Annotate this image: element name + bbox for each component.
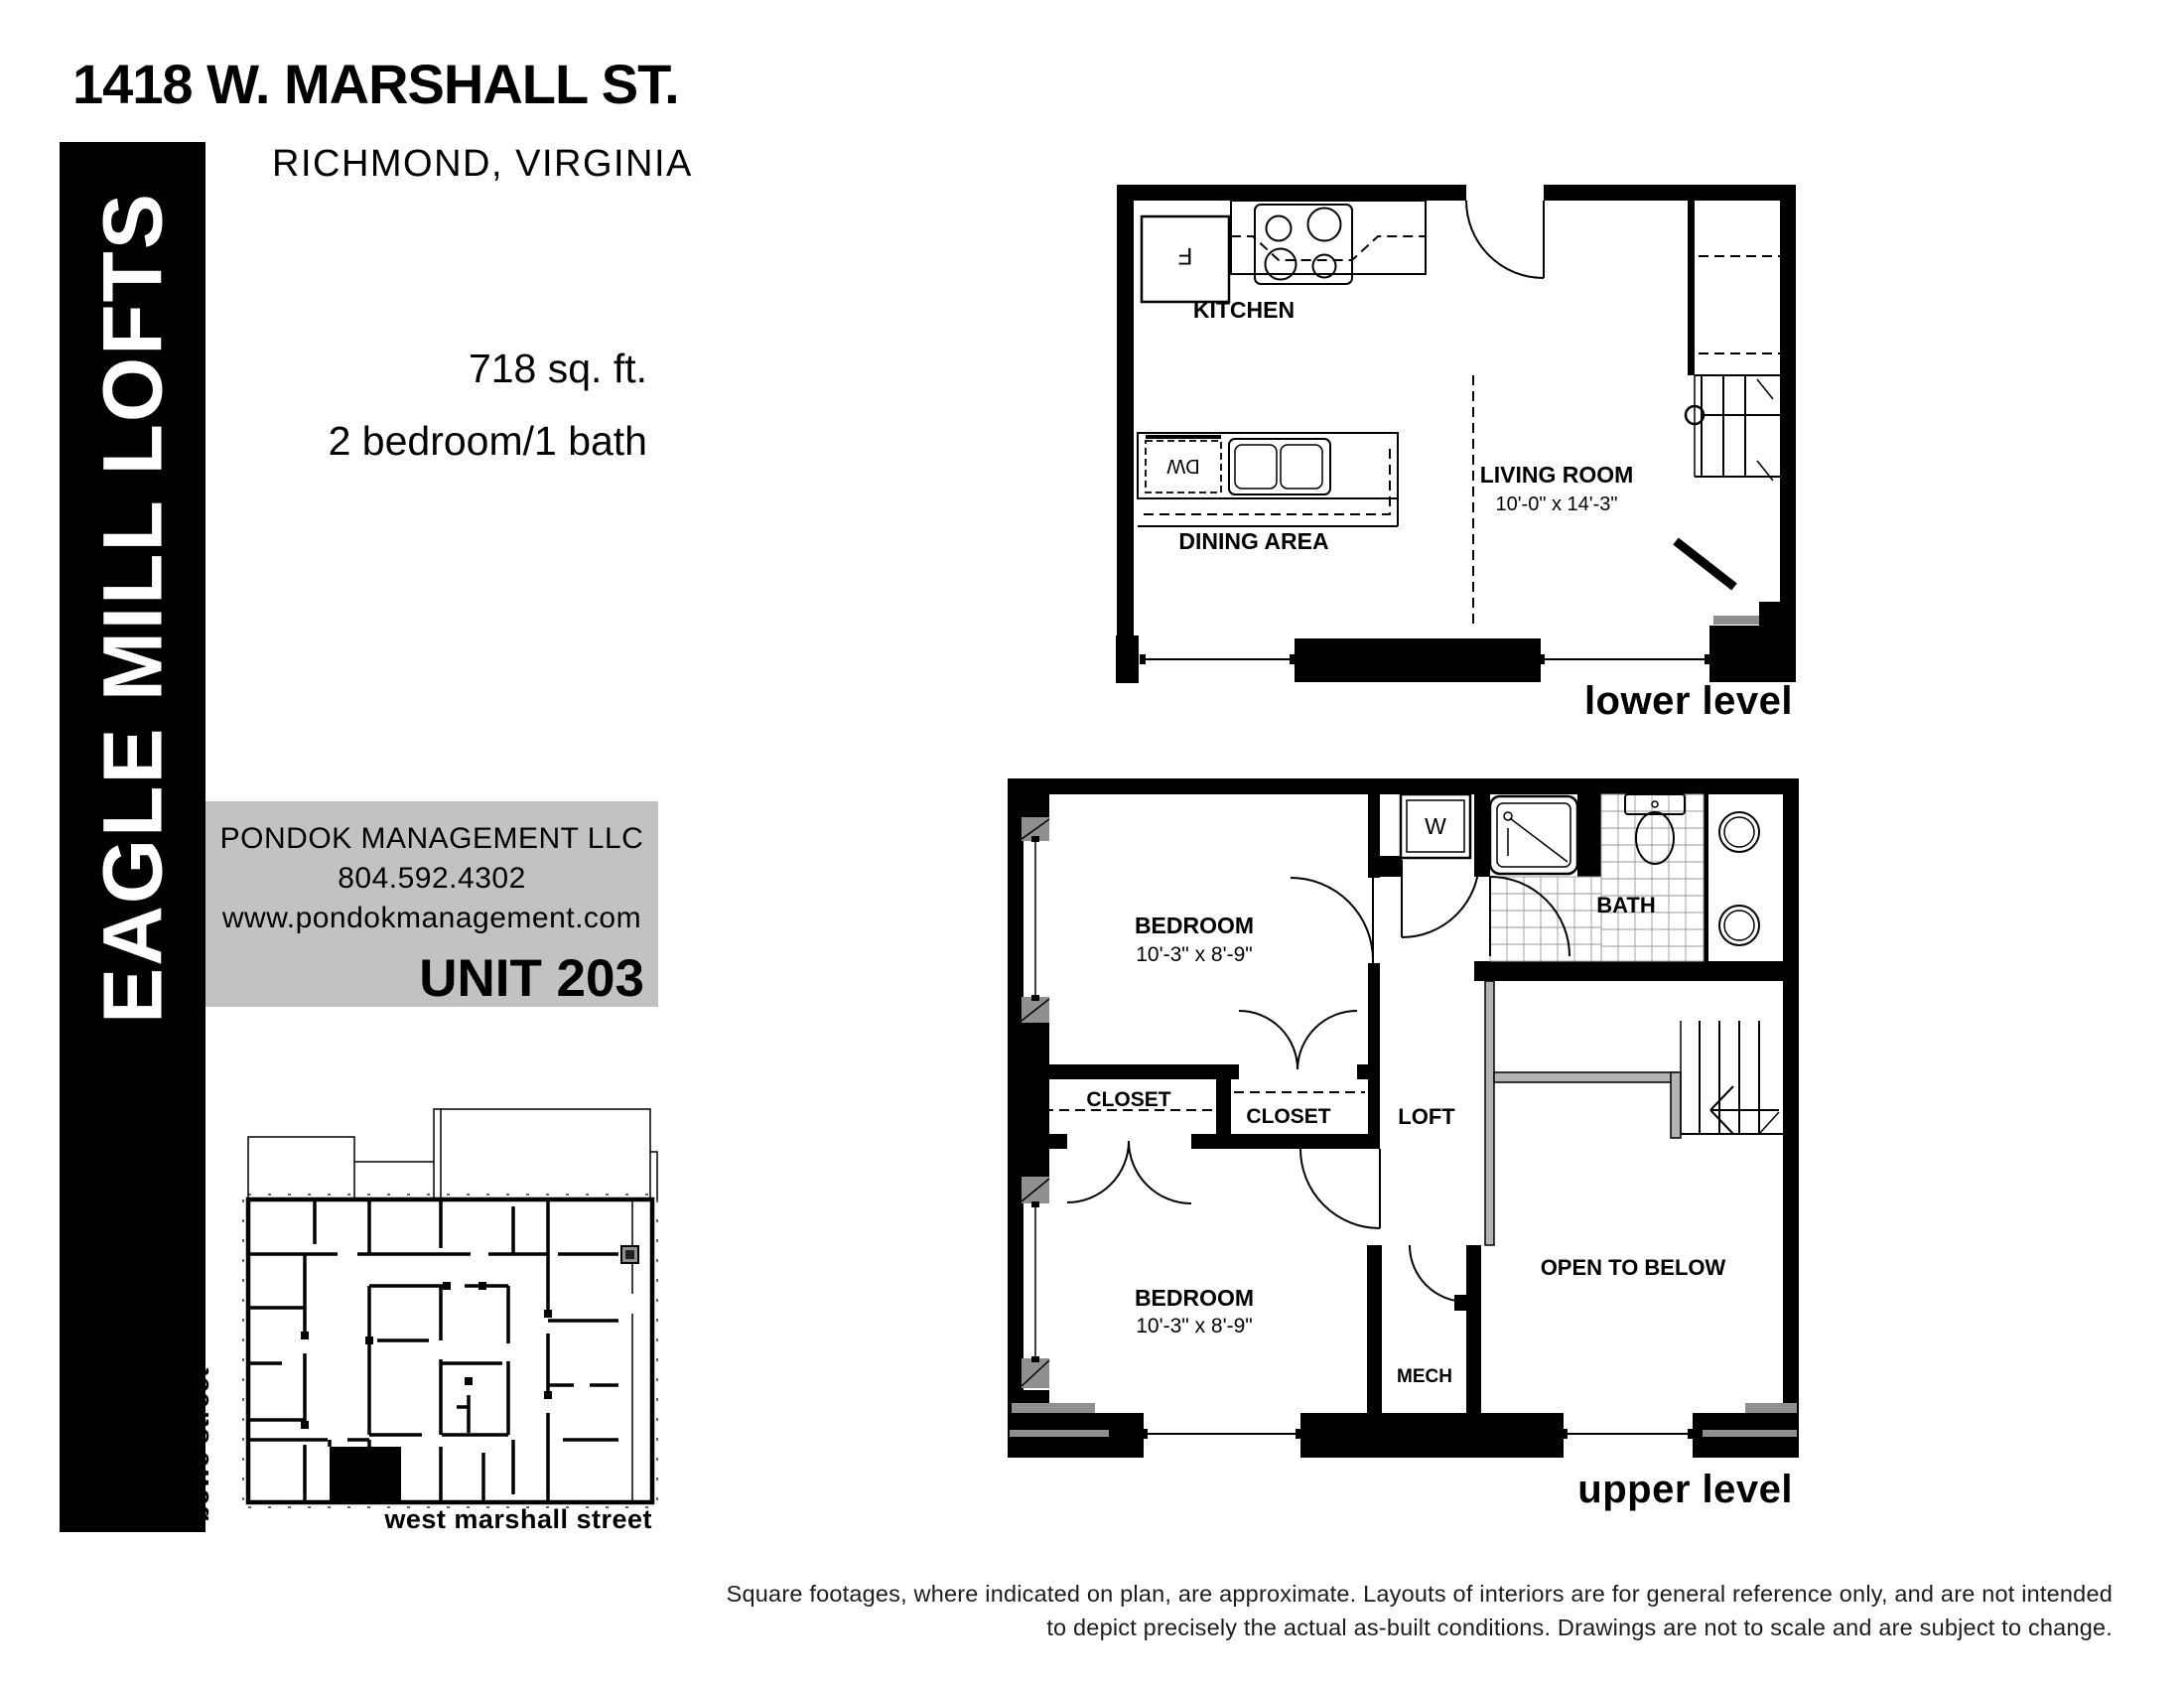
counter-return [1138,498,1398,526]
building-outline [248,1199,652,1502]
shower-lines [1508,818,1568,862]
unit-number: UNIT 203 [205,948,658,1009]
window-nub [1142,1429,1148,1439]
closet-shelf-dashed [1699,256,1780,353]
sink-icon [1719,812,1759,852]
sink-icon [1229,439,1330,494]
wall [1368,794,1380,878]
wall [1367,1245,1382,1413]
wall [1041,1064,1216,1079]
room-label-open-below: OPEN TO BELOW [1541,1255,1726,1280]
site-plan: bowe street west marshall street [191,1097,662,1539]
wall [1704,794,1708,961]
wall [1577,794,1601,877]
sink-basin [1281,445,1322,489]
wall [1780,185,1796,606]
wall [1300,1413,1564,1458]
unit-layout: 2 bedroom/1 bath [297,418,647,465]
loft-edge [1494,1072,1678,1082]
page-subtitle: RICHMOND, VIRGINIA [272,143,644,186]
highlighted-unit [330,1447,401,1502]
stair-edge [1681,1021,1779,1134]
management-website: www.pondokmanagement.com [205,899,658,938]
wall-accent [1713,616,1759,625]
lower-level-caption: lower level [1390,679,1793,724]
wall [1544,185,1796,201]
wall-accent [1703,1430,1797,1437]
wall-accent [1012,1403,1095,1413]
window-nub [1539,654,1545,664]
window-nub [1031,1356,1039,1362]
sink-inner [1724,817,1754,847]
wall [1191,1134,1380,1149]
room-dims-bedroom: 10'-3" x 8'-9" [1136,1315,1252,1337]
room-label-bedroom: BEDROOM [1135,1285,1254,1311]
disclaimer-line2: to depict precisely the actual as-built … [727,1611,2113,1644]
wall [1380,856,1402,877]
wall-accent [1745,1403,1797,1413]
burner-icon [1308,209,1341,241]
management-box: PONDOK MANAGEMENT LLC 804.592.4302 www.p… [205,801,658,1007]
wall-accent [1010,1430,1109,1437]
angled-wall [1676,541,1734,587]
washer-label: W [1425,813,1446,839]
window-nub [1031,836,1039,842]
wall-nubs [301,1282,552,1429]
window-nub [1140,654,1146,664]
toilet-button [1652,801,1658,807]
toilet-bowl [1636,812,1674,864]
window-nub [1562,1429,1568,1439]
room-dims-bedroom: 10'-3" x 8'-9" [1136,943,1252,966]
page-title: 1418 W. MARSHALL ST. [72,52,649,116]
wall [1122,185,1466,201]
room-label-closet: CLOSET [1086,1088,1170,1111]
wall [1688,201,1695,375]
disclaimer-line1: Square footages, where indicated on plan… [727,1577,2113,1611]
wall [1008,1023,1049,1177]
window-nub [1031,995,1039,1001]
wall [1783,778,1799,1458]
wall [1454,1295,1468,1311]
wall [1474,794,1490,877]
mech-door-icon [1410,1245,1466,1302]
room-label-kitchen: KITCHEN [1193,297,1295,323]
room-label-bath: BATH [1596,893,1655,917]
stair-edge [1695,375,1773,481]
floorplan-flyer: 1418 W. MARSHALL ST. RICHMOND, VIRGINIA … [0,0,2184,1688]
wall [1295,638,1541,682]
upper-level-caption: upper level [1390,1468,1793,1512]
room-label-mech: MECH [1397,1366,1452,1387]
burner-icon [1267,216,1292,241]
room-label-living: LIVING ROOM [1480,462,1634,488]
management-phone: 804.592.4302 [205,859,658,899]
upper-level-plan: W BATH [1008,771,1807,1472]
lower-level-plan: F DW KITCHEN DINING AREA LIVING ROOM 10'… [1114,177,1804,688]
disclaimer: Square footages, where indicated on plan… [727,1577,2113,1644]
building-name-banner: EAGLE MILL LOFTS [60,142,205,1532]
closet-double-door-icon [1239,1011,1357,1069]
hall-door-icon [1402,860,1479,937]
entry-door-icon [1466,201,1544,278]
sink-inner [1724,911,1754,940]
dishwasher-label: DW [1166,455,1199,477]
room-label-loft: LOFT [1398,1104,1455,1129]
wall [1466,1245,1481,1413]
stairs-icon [1681,1021,1783,1134]
street-label-marshall: west marshall street [383,1504,652,1534]
wall [1216,1064,1239,1079]
wall [1008,778,1049,817]
wall-pier [1116,635,1139,683]
wall [1474,961,1799,981]
unit-area: 718 sq. ft. [297,346,647,392]
shower-icon [1490,796,1577,874]
closet-double-door-icon [1067,1141,1191,1203]
roof-outline [248,1109,657,1199]
room-dims-living: 10'-0" x 14'-3" [1495,493,1617,515]
wall [1357,1064,1380,1079]
wall-pier [1759,602,1796,630]
loft-railing [1485,981,1494,1245]
room-label-dining: DINING AREA [1178,528,1328,554]
bedroom-door-icon [1300,1149,1380,1228]
management-company: PONDOK MANAGEMENT LLC [205,819,658,859]
wall [1117,185,1134,637]
window-nub [1031,1201,1039,1207]
unit-marker-core [625,1250,634,1259]
room-label-closet: CLOSET [1246,1105,1330,1128]
wall [1041,1134,1067,1149]
wall [1016,778,1799,794]
fridge-label: F [1178,242,1193,269]
sink-basin [1235,445,1277,489]
room-label-bedroom: BEDROOM [1135,913,1254,938]
loft-edge [1671,1072,1681,1138]
wall-pier [1709,626,1796,682]
wall [1368,963,1380,1149]
street-label-bowe: bowe street [185,1367,214,1522]
counter-overhang-dashed [1144,443,1390,514]
sink-icon [1719,906,1759,945]
stairs-icon [1695,375,1780,477]
bedroom-door-icon [1291,878,1373,963]
building-name: EAGLE MILL LOFTS [84,192,181,1024]
interior-walls [248,1201,618,1502]
